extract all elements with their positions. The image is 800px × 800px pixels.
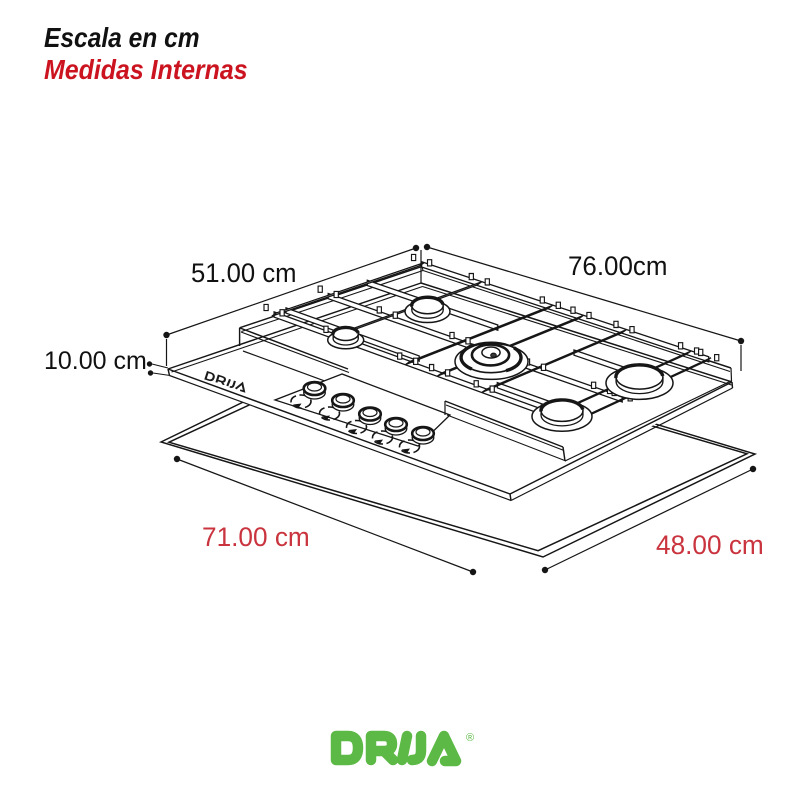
svg-text:®: ® [466, 732, 474, 744]
